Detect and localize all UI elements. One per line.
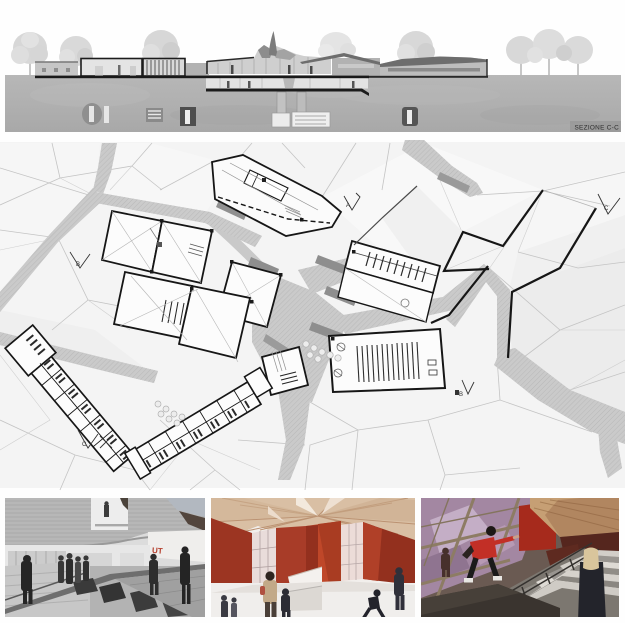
svg-text:A: A bbox=[346, 203, 350, 209]
svg-text:B: B bbox=[459, 392, 463, 398]
svg-text:C: C bbox=[604, 206, 609, 212]
svg-text:SEZIONE C-C: SEZIONE C-C bbox=[575, 125, 620, 132]
svg-text:B: B bbox=[76, 262, 80, 268]
svg-text:C: C bbox=[82, 442, 87, 448]
